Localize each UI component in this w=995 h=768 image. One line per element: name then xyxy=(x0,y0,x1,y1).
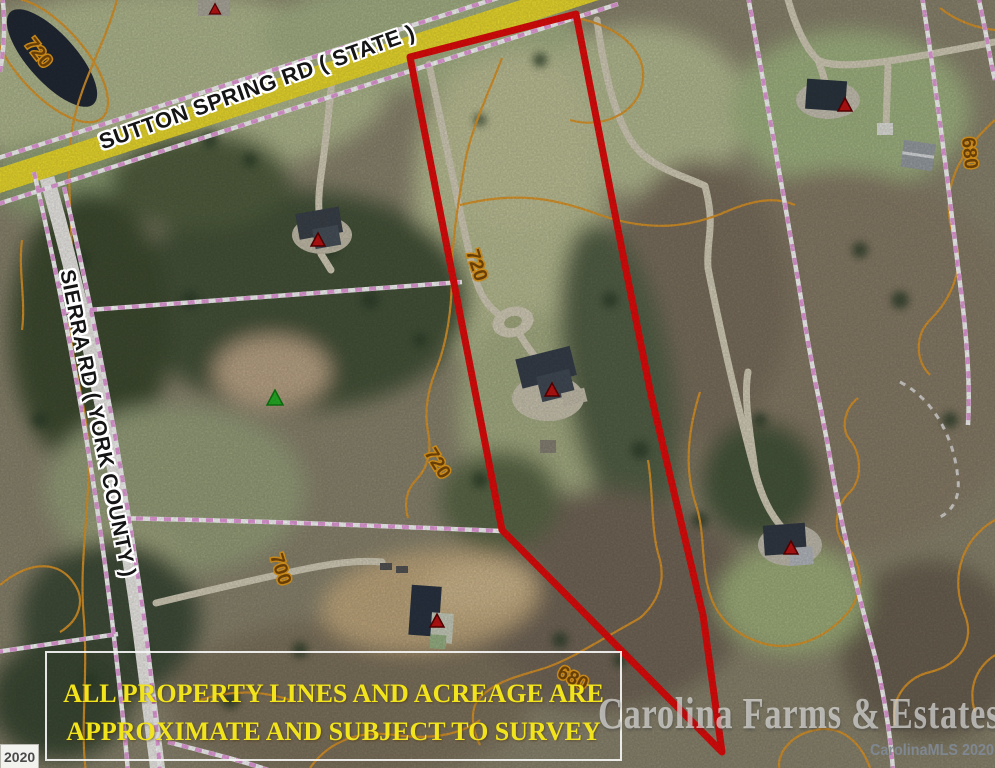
disclaimer-box: ALL PROPERTY LINES AND ACREAGE ARE APPRO… xyxy=(45,651,622,761)
disclaimer-line-1: ALL PROPERTY LINES AND ACREAGE ARE xyxy=(63,675,604,713)
mls-credit: CarolinaMLS 2020 xyxy=(870,742,994,760)
map-canvas: 720 720 720 700 680 680 SUTTON SPRING RD… xyxy=(0,0,995,768)
corner-year-label: 2020 xyxy=(0,744,39,768)
brokerage-watermark: Carolina Farms & Estates xyxy=(598,688,995,739)
disclaimer-line-2: APPROXIMATE AND SUBJECT TO SURVEY xyxy=(66,713,601,751)
